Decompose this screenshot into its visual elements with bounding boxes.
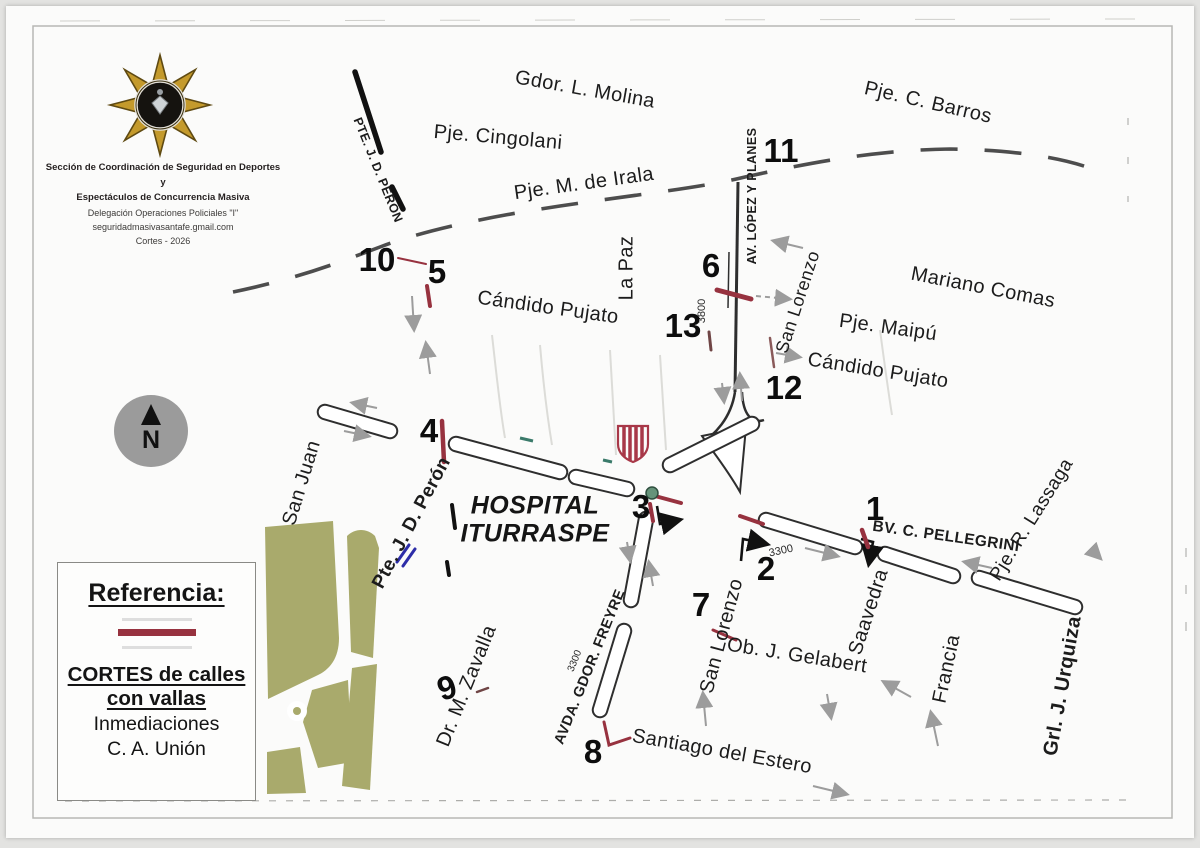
org-line-1: Sección de Coordinación de Seguridad en … xyxy=(44,160,282,190)
police-star-badge-icon xyxy=(110,55,210,155)
legend-line-1: CORTES de calles xyxy=(58,663,255,687)
closure-point-4: 4 xyxy=(420,412,438,450)
closure-point-6: 6 xyxy=(702,247,720,285)
closure-point-12: 12 xyxy=(766,369,803,407)
compass-north-indicator: N xyxy=(112,392,190,470)
closure-point-2: 2 xyxy=(757,550,775,588)
org-line-2: Espectáculos de Concurrencia Masiva xyxy=(44,190,282,205)
legend-line-4: C. A. Unión xyxy=(58,738,255,761)
compass-label: N xyxy=(142,426,160,455)
closure-point-10: 10 xyxy=(359,241,396,279)
org-header: Sección de Coordinación de Seguridad en … xyxy=(44,160,282,249)
closure-point-13: 13 xyxy=(665,307,702,345)
map-page: Sección de Coordinación de Seguridad en … xyxy=(0,0,1200,848)
org-line-4: seguridadmasivasantafe.gmail.com xyxy=(44,220,282,234)
park-area xyxy=(265,521,379,794)
hospital-line-2: ITURRASPE xyxy=(461,520,610,548)
red-barrier-symbol xyxy=(118,629,196,636)
closure-point-8: 8 xyxy=(584,733,602,771)
closure-point-5: 5 xyxy=(428,253,446,291)
closure-point-7: 7 xyxy=(692,586,710,624)
hospital-line-1: HOSPITAL xyxy=(461,493,610,521)
org-line-5: Cortes - 2026 xyxy=(44,234,282,248)
legend-ghost-line-2 xyxy=(122,646,192,649)
union-club-shield xyxy=(618,424,648,464)
legend-ghost-line xyxy=(122,618,192,621)
closure-point-11: 11 xyxy=(764,132,799,170)
legend-title: Referencia: xyxy=(58,579,255,608)
legend-line-2: con vallas xyxy=(58,687,255,711)
closure-point-3: 3 xyxy=(632,488,650,526)
legend-line-3: Inmediaciones xyxy=(58,713,255,736)
hospital-iturraspe-label: HOSPITAL ITURRASPE xyxy=(461,493,610,548)
org-line-3: Delegación Operaciones Policiales "I" xyxy=(44,206,282,220)
closure-point-1: 1 xyxy=(866,490,884,528)
street-label-av-lopez-y-planes: AV. LÓPEZ Y PLANES xyxy=(745,128,759,265)
street-label-la-paz: La Paz xyxy=(616,236,639,301)
faint-sketch-lines xyxy=(492,330,892,455)
legend-box: Referencia: CORTES de calles con vallas … xyxy=(57,562,256,801)
